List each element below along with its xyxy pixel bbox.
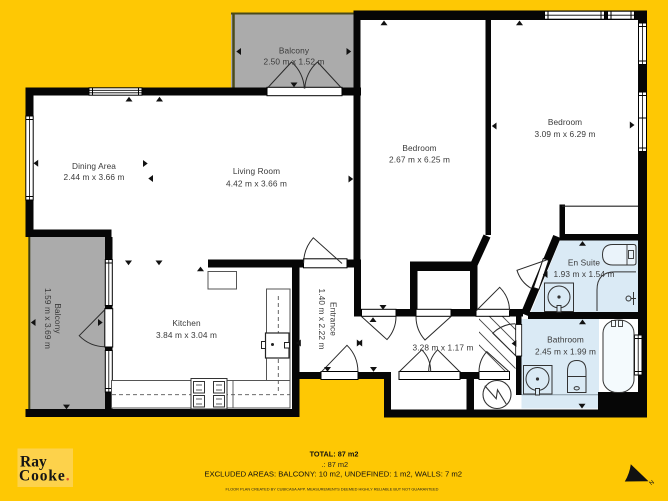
svg-text:FLOOR PLAN CREATED BY CUBICASA: FLOOR PLAN CREATED BY CUBICASA APP. MEAS… [226, 487, 439, 492]
svg-text:Living Room: Living Room [233, 166, 280, 176]
svg-text:Dining Area: Dining Area [72, 161, 116, 171]
svg-text:1.93 m x 1.54 m: 1.93 m x 1.54 m [554, 269, 615, 279]
svg-text:3.84 m x 3.04 m: 3.84 m x 3.04 m [156, 330, 217, 340]
svg-text:Entrance: Entrance [329, 302, 339, 336]
svg-text:Kitchen: Kitchen [172, 318, 201, 328]
svg-text:2.50 m x 1.52 m: 2.50 m x 1.52 m [264, 57, 325, 67]
svg-text:Balcony: Balcony [53, 303, 63, 334]
svg-text:3.28 m x 1.17 m: 3.28 m x 1.17 m [413, 342, 474, 352]
svg-text:2.44 m x 3.66 m: 2.44 m x 3.66 m [64, 172, 125, 182]
svg-text:3.09 m x 6.29 m: 3.09 m x 6.29 m [535, 129, 596, 139]
svg-text:1.40 m x 2.22 m: 1.40 m x 2.22 m [317, 289, 327, 350]
svg-text:1.59 m x 3.69 m: 1.59 m x 3.69 m [43, 288, 53, 349]
svg-text:EXCLUDED AREAS: BALCONY: 10 m2: EXCLUDED AREAS: BALCONY: 10 m2, UNDEFINE… [204, 470, 462, 479]
svg-text:Bedroom: Bedroom [402, 143, 436, 153]
svg-text:Balcony: Balcony [279, 46, 310, 56]
svg-text:.: 87 m2: .: 87 m2 [321, 460, 348, 469]
svg-text:En Suite: En Suite [568, 258, 600, 268]
svg-text:2.67 m x 6.25 m: 2.67 m x 6.25 m [389, 154, 450, 164]
svg-text:Cooke.: Cooke. [19, 467, 70, 484]
svg-text:TOTAL: 87 m2: TOTAL: 87 m2 [310, 450, 359, 459]
svg-text:Bedroom: Bedroom [548, 117, 582, 127]
svg-text:Bathroom: Bathroom [547, 335, 584, 345]
svg-text:4.42 m x 3.66 m: 4.42 m x 3.66 m [226, 178, 287, 188]
svg-text:2.45 m x 1.99 m: 2.45 m x 1.99 m [535, 347, 596, 357]
